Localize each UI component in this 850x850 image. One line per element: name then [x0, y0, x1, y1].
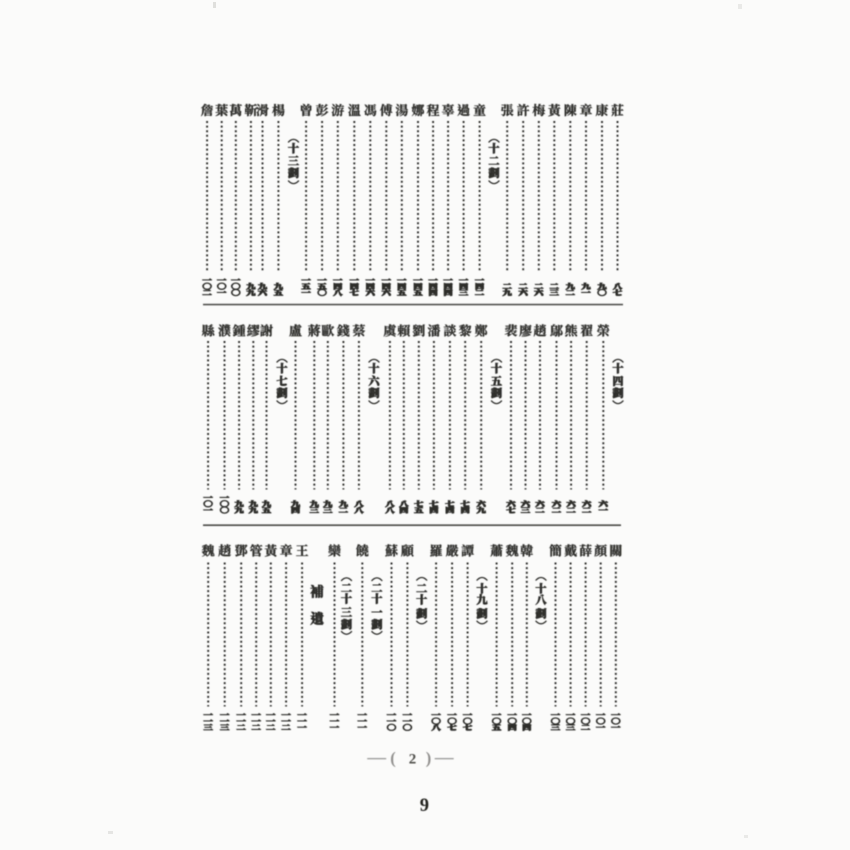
svg-text:): ) [426, 749, 432, 768]
svg-text:9: 9 [420, 796, 429, 816]
svg-text:(: ( [390, 749, 396, 768]
svg-text:2: 2 [409, 751, 417, 767]
